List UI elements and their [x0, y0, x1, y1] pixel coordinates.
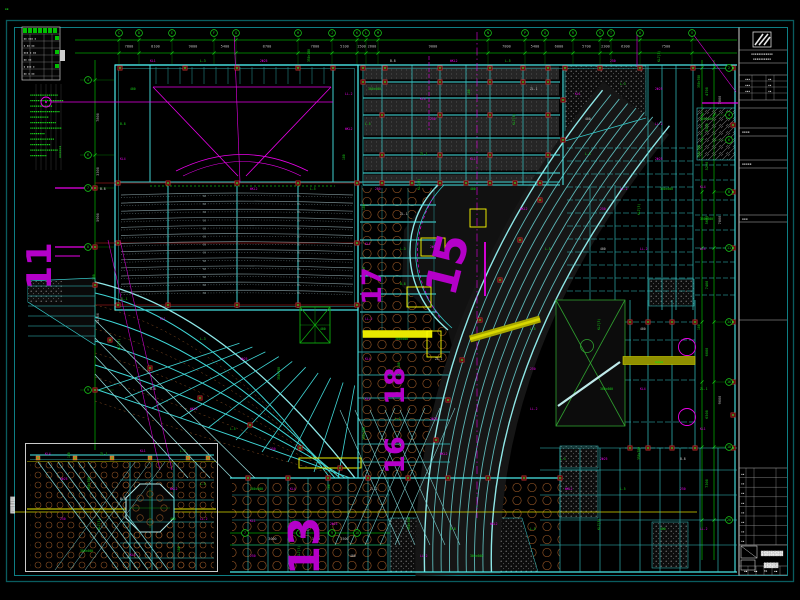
beam-tag: 400: [170, 517, 176, 521]
label: ▪▪ ▪ ▪▪: [24, 73, 35, 76]
label: 86: [297, 244, 300, 247]
beam-tag: 180: [177, 546, 181, 552]
label: ▪▪▪▪▪▪▪▪▪▪▪▪: [751, 52, 773, 56]
label: 86: [203, 260, 206, 263]
beam-tag: KL1: [575, 92, 581, 96]
label: 7800: [718, 216, 722, 225]
beam-tag: 300×600: [700, 217, 713, 221]
beam-tag: 250: [680, 487, 686, 491]
axis-numeral: 11: [20, 242, 60, 289]
beam-tag: ZL-1: [435, 357, 443, 361]
label: ▪▪: [741, 501, 745, 505]
label: ▪▪▪: [745, 77, 750, 81]
label: 7800: [502, 45, 511, 49]
label: 86: [297, 252, 300, 255]
beam-tag: 400: [585, 117, 591, 121]
beam-tag: B-8: [450, 527, 456, 531]
beam-tag: ZL-1: [700, 387, 708, 391]
axis-numeral: 17: [357, 267, 388, 305]
beam-tag: 350×700: [277, 367, 281, 380]
beam-tag: WKL2: [490, 522, 498, 526]
beam-tag: KL4: [700, 247, 706, 251]
label: ▪▪: [744, 569, 748, 573]
label: 4: [728, 113, 730, 117]
label: 5200: [705, 162, 709, 171]
label: 8700: [263, 45, 272, 49]
label: 20: [727, 518, 731, 522]
beam-tag: KL7(3): [657, 51, 661, 62]
label: 7800: [311, 45, 320, 49]
label: T: [610, 31, 612, 35]
label: 6: [728, 138, 730, 142]
beam-tag: WKL2: [190, 407, 198, 411]
label: C: [118, 31, 120, 35]
beam-tag: ZL-1: [120, 297, 128, 301]
label: ▪▪: [768, 89, 772, 93]
beam-tag: 350×700: [697, 145, 701, 158]
label: 2: [728, 66, 730, 70]
detail-view: ▓▓▓▓▓▓▓: [10, 444, 218, 572]
beam-tag: KL7(3): [597, 519, 601, 530]
label: ▪▪: [768, 77, 772, 81]
beam-tag: LL-2: [420, 554, 428, 558]
beam-tag: KL1: [150, 59, 156, 63]
cad-canvas: ▪▪▪▪▪▪▪▪▪▪▪▪▪▪▪▪▪▪▪▪▪▪▪▪▪▪▪▪▪▪▪▪▪▪▪▪▪▪▪▪…: [0, 0, 800, 600]
label: N: [487, 31, 489, 35]
beam-tag: KL7(3): [117, 339, 121, 350]
beam-tag: L-3: [620, 82, 626, 86]
drawing-name: ▓▓▓▓▓: [764, 562, 779, 569]
beam-tag: KL1: [365, 397, 371, 401]
label: 5900: [96, 213, 100, 222]
hole-circle-mark: [679, 339, 696, 356]
slab-top-bands: [364, 67, 559, 184]
label: 86: [297, 227, 300, 230]
beam-tag: 2Φ25: [430, 417, 438, 421]
detail-title-vertical: ▓▓▓▓▓▓▓: [10, 496, 15, 513]
label: 1500: [357, 45, 366, 49]
beam-tag: 180: [467, 89, 471, 95]
beam-tag: L-3: [400, 247, 406, 251]
beam-tag: 180: [397, 362, 401, 368]
label: 86: [297, 236, 300, 239]
label: 6300: [621, 45, 630, 49]
beam-tag: 350×700: [637, 447, 641, 460]
label: S: [599, 31, 601, 35]
label: 11: [727, 246, 731, 250]
beam-tag: L-3: [200, 337, 206, 341]
label: ▪▪ ▪▪▪ ▪: [24, 38, 37, 41]
hole-circle-mark: [679, 409, 696, 426]
label: ▪ ▪▪ ▪▪: [24, 45, 35, 48]
label: ▪▪▪▪▪▪▪▪▪▪▪▪▪▪: [30, 121, 56, 125]
axis-numeral: 18: [380, 367, 411, 405]
beam-tag: 180: [67, 452, 71, 458]
fan-lobby: [28, 278, 355, 478]
label: D: [138, 31, 140, 35]
label: 4700: [705, 87, 709, 96]
beam-tag: 400: [600, 247, 606, 251]
beam-tag: LL-2: [700, 527, 708, 531]
label: 14: [727, 320, 731, 324]
label: 18: [727, 445, 731, 449]
beam-tag: L-3: [180, 449, 186, 453]
label: ▪▪: [741, 472, 745, 476]
label: ▪▪▪▪▪▪▪▪▪▪: [753, 57, 771, 61]
label: 86: [297, 203, 300, 206]
label: ▪▪: [768, 83, 772, 87]
beam-tag: KL1: [470, 157, 476, 161]
label: 5100: [340, 45, 349, 49]
beam-tag: 350×700: [307, 49, 311, 62]
beam-tag: 400: [320, 327, 326, 331]
beam-tag: KL1: [160, 317, 166, 321]
beam-tag: 350×700: [407, 517, 411, 530]
label: 8100: [151, 45, 160, 49]
label: ▪▪ ▪▪: [24, 59, 32, 62]
beam-tag: KL4: [290, 487, 296, 491]
label: 86: [203, 252, 206, 255]
label: 14300: [96, 313, 100, 324]
beam-tag: 2Φ25: [600, 457, 608, 461]
label: H: [297, 31, 299, 35]
beam-tag: 300×600: [600, 387, 613, 391]
label: V: [691, 31, 693, 35]
label: ▪▪▪▪▪▪▪▪▪▪▪▪▪▪▪▪: [30, 110, 60, 114]
beam-tag: KL1: [700, 427, 706, 431]
label: 6000: [555, 45, 564, 49]
beam-tag: WKL2: [250, 187, 258, 191]
beam-tag: LL-2: [530, 407, 538, 411]
beam-tag: KL7(3): [512, 114, 516, 125]
label: 86: [297, 219, 300, 222]
label: 6000: [705, 348, 709, 357]
beam-tag: L-3: [200, 59, 206, 63]
beam-tag: KL7(3): [637, 204, 641, 215]
label: ▪▪▪▪▪▪▪▪▪▪: [30, 115, 49, 119]
beam-tag: WKL2: [345, 127, 353, 131]
beam-tag: KL4: [420, 97, 426, 101]
beam-tag: 300×600: [395, 337, 408, 341]
beam-tag: 350×700: [697, 75, 701, 88]
beam-tag: LL-2: [640, 247, 648, 251]
label: 7400: [705, 281, 709, 290]
label: 6500: [705, 410, 709, 419]
beam-tag: 250: [270, 447, 276, 451]
label: ▪▪: [741, 530, 745, 534]
beam-tag: ZL-1: [100, 452, 108, 456]
beam-tag: B-8: [120, 122, 126, 126]
label: 9000: [718, 396, 722, 405]
beam-tag: 2Φ25: [330, 522, 338, 526]
label: 5400: [221, 45, 230, 49]
label: 5700: [582, 45, 591, 49]
label: 86: [203, 203, 206, 206]
label: ▪▪: [741, 510, 745, 514]
beam-tag: 400: [350, 554, 356, 558]
beam-tag: 250: [610, 59, 616, 63]
label: ▪▪: [774, 569, 778, 573]
beam-tag: KL7(3): [597, 319, 601, 330]
label: 2300: [601, 45, 610, 49]
beam-tag: B-8: [390, 59, 396, 63]
beam-tag: 250: [250, 554, 256, 558]
label: ▪▪▪ ▪ ▪▪: [24, 52, 37, 55]
label: 86: [203, 268, 206, 271]
label: ▪▪▪▪▪▪▪▪▪: [30, 154, 47, 158]
beam-tag: ZL-1: [400, 212, 408, 216]
label: ▪▪▪▪▪▪▪▪▪▪▪: [30, 143, 51, 147]
legend-table: ▪▪ ▪▪▪ ▪▪ ▪▪ ▪▪▪▪▪ ▪ ▪▪▪▪ ▪▪▪ ▪▪▪ ▪▪▪ ▪ …: [22, 27, 65, 80]
beam-tag: L-5: [365, 122, 371, 126]
label: 86: [203, 195, 206, 198]
beam-tag: KL1: [140, 449, 146, 453]
label: ▪▪: [754, 569, 758, 573]
beam-tag: ZL-1: [370, 487, 378, 491]
olive-beam-tag: ▪▪▪▪: [655, 360, 663, 364]
beam-tag: 300×600: [250, 487, 263, 491]
beam-tag: KL4: [120, 157, 126, 161]
label: 86: [203, 219, 206, 222]
label: 86: [203, 284, 206, 287]
label: ▪▪▪▪▪: [742, 162, 752, 166]
label: 7: [244, 531, 246, 535]
beam-tag: WKL2: [170, 487, 178, 491]
label: 86: [297, 284, 300, 287]
beam-tag: KL1: [250, 519, 256, 523]
label: 86: [297, 292, 300, 295]
beam-tag: 2Φ25: [240, 357, 248, 361]
beam-tag: 2Φ25: [655, 157, 663, 161]
beam-tag: B-8: [150, 387, 156, 391]
beam-tag: 250: [530, 367, 536, 371]
label: ▪▪▪▪: [742, 130, 750, 134]
beam-tag: 300×600: [470, 554, 483, 558]
label: 8: [728, 190, 730, 194]
beam-tag: 250: [375, 187, 381, 191]
label: 3300: [96, 167, 100, 176]
label: 86: [297, 276, 300, 279]
beam-tag: 180: [342, 154, 346, 160]
axis-numeral: 16: [380, 436, 411, 474]
label: 7800: [718, 96, 722, 105]
beam-tag: 250: [430, 117, 436, 121]
label: ▪▪▪: [745, 83, 750, 87]
label: 86: [203, 276, 206, 279]
section-label-vertical: ▪▪▪▪▪▪: [58, 146, 62, 158]
beam-tag: 350×700: [362, 427, 366, 440]
label: U: [639, 31, 641, 35]
label: 8: [87, 245, 89, 249]
beam-tag: WKL2: [565, 487, 573, 491]
label: 9: [87, 388, 89, 392]
beam-tag: 300×600: [80, 549, 93, 553]
beam-tag: 400: [470, 187, 476, 191]
beam-tag: 180: [362, 204, 366, 210]
label: ▪▪: [741, 482, 745, 486]
beam-tag: KL4: [640, 387, 646, 391]
title-block: ▪▪▪▪▪▪▪▪▪▪▪▪▪▪▪▪▪▪▪▪▪▪▪▪▪▪▪▪▪▪▪▪▪▪▪▪▪▪▪▪…: [739, 28, 787, 576]
label: 2600: [368, 45, 377, 49]
label: ▪▪▪▪▪▪▪▪▪▪▪▪▪▪▪▪▪: [30, 126, 62, 130]
beam-tag: KL7(3): [97, 519, 101, 530]
label: P: [524, 31, 526, 35]
label: 86: [203, 236, 206, 239]
label: 86: [203, 244, 206, 247]
beam-tag: L-3: [585, 152, 591, 156]
label: ▪▪: [741, 491, 745, 495]
project-name: ▓▓▓▓▓▓▓▓: [761, 550, 783, 557]
label: G: [235, 31, 237, 35]
beam-tag: L-5: [310, 187, 316, 191]
label: ▪▪▪▪▪▪▪▪▪▪▪▪▪▪▪: [30, 148, 58, 152]
label: ▪▪▪: [742, 217, 748, 221]
label: 86: [203, 227, 206, 230]
beam-tag: ZL-1: [530, 87, 538, 91]
beam-tag: LL-2: [655, 122, 663, 126]
label: 2500: [705, 123, 709, 132]
beam-tag: KL4: [130, 553, 136, 557]
beam-tag: 2Φ25: [260, 59, 268, 63]
beam-tag: KL4: [365, 357, 371, 361]
label: ▪▪▪▪▪▪▪▪▪▪▪▪▪▪▪: [30, 93, 58, 97]
label: J: [331, 31, 333, 35]
beam-tag: 400: [130, 87, 136, 91]
beam-tag: 300×600: [700, 117, 713, 121]
label: 7800: [96, 113, 100, 122]
beam-tag: L-5: [545, 247, 551, 251]
beam-tag: 180: [92, 274, 96, 280]
beam-tag: 250: [60, 517, 66, 521]
beam-tag: L-5: [230, 427, 236, 431]
label: 86: [203, 211, 206, 214]
label: 86: [297, 195, 300, 198]
label: 4: [87, 78, 89, 82]
beam-tag: L-3: [560, 457, 566, 461]
label: 10: [355, 531, 359, 535]
label: 9: [331, 531, 333, 535]
label: ▪▪: [741, 520, 745, 524]
label: 01: [764, 569, 768, 573]
label: 16: [727, 380, 731, 384]
beam-tag: KL1: [365, 242, 371, 246]
label: 86: [297, 268, 300, 271]
label: 3000: [268, 537, 276, 541]
beam-tag: L-5: [620, 487, 626, 491]
label: ▪▪: [741, 539, 745, 543]
beam-tag: KL7(3): [417, 179, 421, 190]
x-braced-panel: [556, 300, 625, 426]
label: 7: [87, 186, 89, 190]
beam-tag: LL-2: [365, 317, 373, 321]
beam-tag: B-8: [120, 497, 126, 501]
beam-tag: 300×600: [660, 187, 673, 191]
legend-tab: [60, 50, 65, 61]
label: ▪ ▪▪▪ ▪: [24, 66, 35, 69]
beam-tag: WKL2: [440, 452, 448, 456]
beam-tag: B-8: [400, 282, 406, 286]
label: 2500: [340, 537, 348, 541]
beam-tag: 400: [640, 327, 646, 331]
beam-tag: B-8: [100, 187, 106, 191]
beam-tag: ZL-1: [420, 152, 428, 156]
beam-tag: LL-2: [200, 517, 208, 521]
label: 6: [87, 153, 89, 157]
label: M: [377, 31, 379, 35]
label: 7800: [125, 45, 134, 49]
label: ▪▪▪: [745, 89, 750, 93]
label: 7300: [705, 479, 709, 488]
beam-tag: LL-2: [620, 187, 628, 191]
beam-tag: L-3: [395, 417, 401, 421]
beam-tag: 350×700: [87, 477, 91, 490]
beam-tag: 2Φ25: [655, 87, 663, 91]
label: 9000: [189, 45, 198, 49]
beam-tag: 2Φ25: [60, 477, 68, 481]
label: E: [171, 31, 173, 35]
label: 7500: [662, 45, 671, 49]
label: ▪▪▪▪▪▪▪▪: [30, 132, 45, 136]
beam-tag: 250: [600, 207, 606, 211]
beam-tag: L-5: [505, 59, 511, 63]
label: L: [365, 31, 367, 35]
label: F: [213, 31, 215, 35]
beam-tag: L-5: [200, 482, 206, 486]
label: ▪▪▪▪▪▪▪▪▪▪▪▪▪: [30, 137, 54, 141]
beam-tag: 180: [697, 324, 701, 330]
beam-tag: 300×600: [368, 87, 381, 91]
beam-tag: KL4: [700, 185, 706, 189]
label: Q: [544, 31, 546, 35]
beam-tag: KL4: [45, 452, 51, 456]
beam-tag: 180: [327, 484, 331, 490]
beam-tag: L-5: [530, 327, 536, 331]
label: 86: [297, 211, 300, 214]
label: 5400: [531, 45, 540, 49]
beam-tag: WKL2: [520, 207, 528, 211]
corner-marks: ▪▪: [5, 7, 9, 11]
beam-tag: WKL2: [450, 59, 458, 63]
beam-tag: B-8: [680, 457, 686, 461]
green-hatch-square: [300, 307, 330, 343]
beam-tag: LL-2: [345, 92, 353, 96]
label: 86: [297, 260, 300, 263]
label: 9000: [429, 45, 438, 49]
beam-tag: 400: [660, 527, 666, 531]
structural-plan-drawing[interactable]: ▪▪▪▪▪▪▪▪▪▪▪▪▪▪▪▪▪▪▪▪▪▪▪▪▪▪▪▪▪▪▪▪▪▪▪▪▪▪▪▪…: [0, 0, 800, 600]
axis-numeral: 13: [280, 517, 329, 575]
label: 86: [203, 292, 206, 295]
beam-tag: L-5: [530, 527, 536, 531]
